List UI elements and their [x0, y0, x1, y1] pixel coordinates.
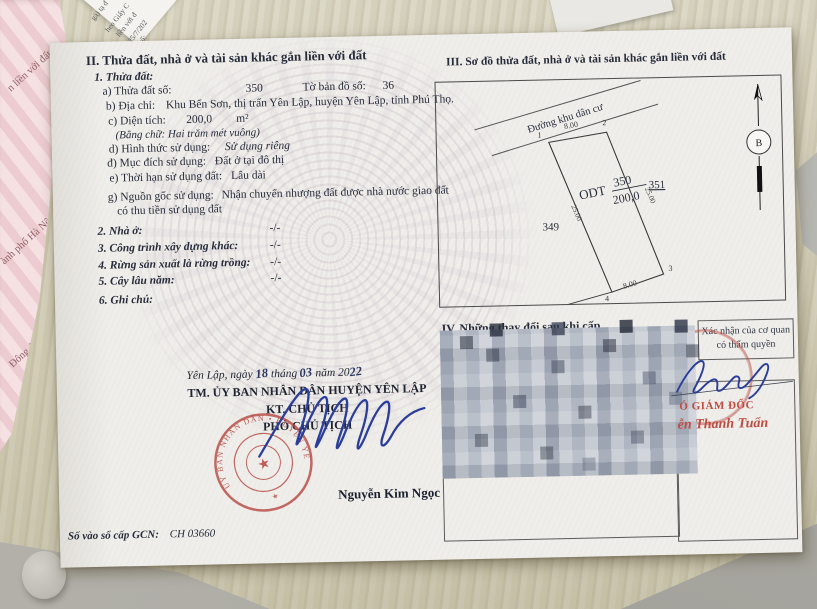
section-ii-title: II. Thửa đất, nhà ở và tài sản khác gắn … [86, 47, 367, 69]
house-line: 2. Nhà ở: -/- [97, 220, 397, 226]
parcel-no-value: 350 [245, 82, 262, 94]
construction-value: -/- [270, 239, 281, 251]
director-title-red: Ó GIÁM ĐỐC [679, 399, 754, 413]
plot-diagram: Đường khu dân cư 1 2 3 4 8.00 8.00 25.00… [436, 76, 786, 307]
signature-chairman [252, 373, 434, 469]
registry-value: CH 03660 [170, 527, 216, 540]
term-line: e) Thời hạn sử dụng đất: Lâu dài [109, 169, 266, 184]
plot-diagram-box: Đường khu dân cư 1 2 3 4 8.00 8.00 25.00… [434, 75, 786, 308]
svg-text:★: ★ [271, 492, 280, 502]
plot-area: 200,0 [611, 188, 640, 207]
area-in-words: (Bằng chữ: Hai trăm mét vuông) [115, 126, 260, 141]
director-name-red: ễn Thanh Tuấn [678, 416, 769, 434]
construction-line: 3. Công trình xây dựng khác: -/- [98, 237, 398, 243]
use-form-line: d) Hình thức sử dụng: Sử dụng riêng [109, 140, 290, 156]
term-value: Lâu dài [231, 169, 266, 182]
perennial-value: -/- [270, 272, 281, 284]
plot-centre-label: ODT 350 200,0 [577, 170, 650, 214]
corner-3-label: 3 [668, 264, 672, 273]
address-value: Khu Bến Sơn, thị trấn Yên Lập, huyện Yên… [166, 93, 454, 111]
dim-bottom: 8.00 [622, 278, 638, 291]
certificate-page: II. Thửa đất, nhà ở và tài sản khác gắn … [50, 27, 803, 567]
notes-label: 6. Ghi chú: [99, 294, 153, 307]
place-date-prefix: Yên Lập, ngày [186, 369, 252, 382]
origin-line: g) Nguồn gốc sử dụng: Nhận chuyển nhượng… [108, 184, 449, 203]
signature-director [668, 345, 795, 406]
privacy-mosaic [440, 325, 698, 478]
use-form-label: d) Hình thức sử dụng: [109, 141, 210, 155]
dim-left: 25.00 [569, 203, 584, 222]
area-value: 200,0 [186, 113, 212, 126]
house-value: -/- [269, 222, 280, 234]
address-label: b) Địa chỉ: [106, 100, 155, 113]
north-arrow: B [746, 84, 773, 210]
use-form-value: Sử dụng riêng [225, 140, 290, 153]
registry-line: Số vào sổ cấp GCN: CH 03660 [68, 527, 216, 542]
term-label: e) Thời hạn sử dụng đất: [109, 170, 222, 184]
origin-line-2: có thu tiền sử dụng đất [117, 203, 222, 217]
forest-value: -/- [270, 256, 281, 268]
purpose-label: đ) Mục đích sử dụng: [107, 156, 206, 170]
adjacent-parcel-left: 349 [542, 221, 559, 233]
origin-value-1: Nhận chuyển nhượng đất được nhà nước gia… [221, 184, 448, 201]
plot-use-code: ODT [578, 183, 607, 203]
area-label: c) Diện tích: [108, 114, 166, 127]
map-sheet-label: Tờ bản đồ số: [302, 80, 366, 93]
purpose-value: Đất ở tại đô thị [215, 154, 285, 167]
section-iii-title: III. Sơ đồ thửa đất, nhà ở và tài sản kh… [446, 51, 726, 69]
adjacent-parcel-right: 351 [649, 179, 666, 191]
parcel-no-label: a) Thửa đất số: [102, 84, 171, 97]
pink-cover-text: n liền với đất [5, 49, 54, 94]
construction-label: 3. Công trình xây dựng khác: [98, 240, 239, 255]
purpose-line: đ) Mục đích sử dụng: Đất ở tại đô thị [107, 154, 284, 170]
plot-number: 350 [612, 172, 632, 189]
area-unit: m² [236, 113, 249, 125]
north-label: B [755, 138, 762, 149]
house-label: 2. Nhà ở: [97, 225, 142, 238]
forest-line: 4. Rừng sản xuất là rừng trồng: -/- [98, 254, 398, 260]
forest-label: 4. Rừng sản xuất là rừng trồng: [98, 257, 250, 272]
corner-1-label: 1 [538, 131, 542, 140]
parcel-heading: 1. Thửa đất: [94, 71, 153, 84]
origin-label: g) Nguồn gốc sử dụng: [108, 189, 214, 203]
registry-label: Số vào sổ cấp GCN: [68, 529, 159, 543]
privacy-mosaic-squares [460, 336, 473, 349]
corner-4-label: 4 [605, 294, 609, 303]
corner-2-label: 2 [602, 118, 606, 127]
map-sheet-value: 36 [382, 80, 394, 92]
perennial-label: 5. Cây lâu năm: [98, 274, 174, 288]
